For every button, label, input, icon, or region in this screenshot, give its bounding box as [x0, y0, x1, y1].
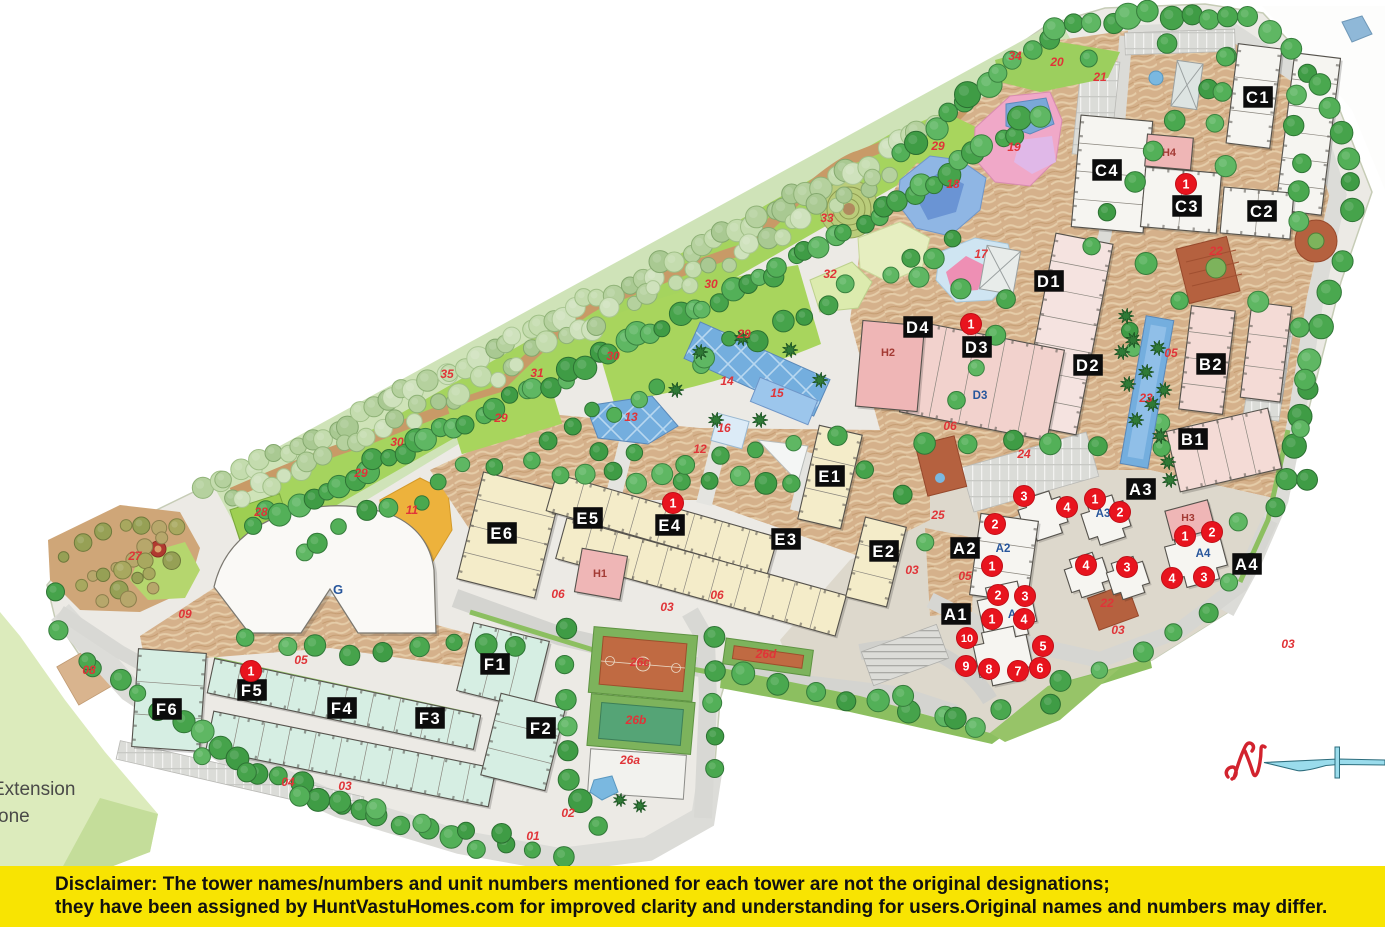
svg-text:34: 34: [1008, 49, 1022, 63]
svg-text:1: 1: [670, 497, 677, 511]
svg-text:B1: B1: [1181, 431, 1205, 449]
svg-text:1: 1: [968, 318, 975, 332]
svg-text:26c: 26c: [629, 655, 650, 669]
svg-text:13: 13: [624, 410, 638, 424]
svg-text:06: 06: [943, 419, 957, 433]
svg-text:Extension: Extension: [0, 779, 75, 800]
svg-text:05: 05: [294, 653, 308, 667]
svg-text:22: 22: [1099, 596, 1114, 610]
svg-text:4: 4: [1021, 613, 1028, 627]
svg-text:02: 02: [561, 806, 575, 820]
svg-text:G: G: [333, 582, 343, 597]
svg-text:C3: C3: [1175, 198, 1199, 216]
svg-text:1: 1: [989, 613, 996, 627]
svg-text:25: 25: [930, 508, 945, 522]
svg-text:33: 33: [820, 211, 834, 225]
svg-text:01: 01: [526, 829, 540, 843]
svg-text:4: 4: [1064, 501, 1071, 515]
svg-text:22: 22: [1208, 244, 1223, 258]
svg-text:5: 5: [1040, 640, 1047, 654]
svg-text:1: 1: [1182, 530, 1189, 544]
svg-text:1: 1: [248, 665, 255, 679]
svg-text:05: 05: [1164, 346, 1178, 360]
svg-text:1: 1: [989, 560, 996, 574]
svg-text:27: 27: [127, 549, 143, 563]
svg-text:15: 15: [770, 386, 784, 400]
svg-text:3: 3: [1021, 490, 1028, 504]
svg-text:F4: F4: [331, 700, 353, 718]
svg-text:F2: F2: [530, 720, 552, 738]
svg-text:D2: D2: [1076, 357, 1100, 375]
svg-text:E6: E6: [490, 525, 513, 543]
svg-text:1: 1: [1092, 493, 1099, 507]
svg-text:03: 03: [1281, 637, 1295, 651]
svg-text:10: 10: [961, 633, 973, 645]
svg-text:they have been assigned by Hun: they have been assigned by HuntVastuHome…: [55, 897, 1327, 918]
svg-text:4: 4: [1169, 572, 1176, 586]
svg-text:3: 3: [1124, 561, 1131, 575]
svg-text:A4: A4: [1196, 548, 1211, 560]
svg-text:17: 17: [974, 247, 989, 261]
svg-text:F1: F1: [484, 656, 506, 674]
svg-text:03: 03: [905, 563, 919, 577]
svg-text:E1: E1: [818, 468, 841, 486]
svg-text:03: 03: [1111, 623, 1125, 637]
svg-text:08: 08: [82, 663, 96, 677]
svg-text:H1: H1: [593, 568, 607, 580]
svg-text:29: 29: [736, 327, 751, 341]
svg-text:one: one: [0, 806, 30, 827]
svg-text:26b: 26b: [625, 713, 647, 727]
svg-text:E3: E3: [774, 531, 797, 549]
svg-text:09: 09: [178, 607, 192, 621]
svg-text:Disclaimer: The tower names/nu: Disclaimer: The tower names/numbers and …: [55, 874, 1110, 895]
svg-text:19: 19: [1007, 140, 1021, 154]
svg-text:29: 29: [930, 139, 945, 153]
svg-text:C4: C4: [1095, 162, 1119, 180]
svg-text:14: 14: [720, 374, 734, 388]
svg-text:A2: A2: [953, 540, 977, 558]
svg-text:D1: D1: [1037, 273, 1061, 291]
svg-text:2: 2: [995, 589, 1002, 603]
svg-text:A1: A1: [944, 606, 968, 624]
svg-text:23: 23: [1138, 391, 1153, 405]
svg-text:F5: F5: [241, 682, 263, 700]
svg-text:2: 2: [992, 518, 999, 532]
svg-text:24: 24: [1016, 447, 1031, 461]
svg-text:A4: A4: [1235, 556, 1259, 574]
svg-text:03: 03: [338, 779, 352, 793]
svg-text:9: 9: [963, 660, 970, 674]
svg-text:8: 8: [986, 663, 993, 677]
svg-text:7: 7: [1015, 665, 1022, 679]
svg-text:06: 06: [710, 588, 724, 602]
svg-text:30: 30: [606, 349, 620, 363]
svg-text:E4: E4: [658, 517, 681, 535]
svg-text:06: 06: [551, 587, 565, 601]
svg-text:30: 30: [390, 435, 404, 449]
svg-text:E2: E2: [872, 543, 895, 561]
svg-text:32: 32: [823, 267, 837, 281]
svg-text:D3: D3: [965, 339, 989, 357]
svg-text:C1: C1: [1246, 89, 1270, 107]
svg-text:2: 2: [1117, 506, 1124, 520]
svg-text:B2: B2: [1199, 356, 1223, 374]
svg-text:11: 11: [406, 503, 419, 517]
svg-text:31: 31: [530, 366, 544, 380]
svg-text:04: 04: [281, 775, 295, 789]
svg-text:6: 6: [1037, 662, 1044, 676]
svg-text:30: 30: [704, 277, 718, 291]
svg-text:H3: H3: [1181, 512, 1195, 524]
svg-text:2: 2: [1209, 526, 1216, 540]
svg-text:H2: H2: [881, 347, 895, 359]
svg-text:26d: 26d: [755, 647, 777, 661]
svg-text:F3: F3: [419, 710, 441, 728]
svg-text:12: 12: [693, 442, 707, 456]
svg-text:A2: A2: [996, 543, 1011, 555]
svg-text:16: 16: [717, 421, 731, 435]
svg-text:3: 3: [1201, 571, 1208, 585]
svg-text:28: 28: [253, 505, 268, 519]
svg-text:A3: A3: [1096, 508, 1111, 520]
svg-text:3: 3: [1022, 590, 1029, 604]
svg-text:H4: H4: [1162, 147, 1177, 159]
svg-text:C2: C2: [1250, 203, 1274, 221]
svg-text:21: 21: [1092, 70, 1107, 84]
svg-text:05: 05: [958, 569, 972, 583]
svg-text:D4: D4: [906, 319, 930, 337]
svg-text:18: 18: [946, 177, 960, 191]
svg-text:A3: A3: [1129, 481, 1153, 499]
svg-text:F6: F6: [156, 701, 178, 719]
svg-text:26a: 26a: [619, 753, 640, 767]
svg-text:E5: E5: [576, 510, 599, 528]
svg-text:29: 29: [353, 466, 368, 480]
svg-text:03: 03: [660, 600, 674, 614]
svg-text:35: 35: [440, 367, 454, 381]
svg-text:D3: D3: [973, 390, 988, 402]
svg-text:29: 29: [493, 411, 508, 425]
svg-text:20: 20: [1049, 55, 1064, 69]
svg-text:1: 1: [1183, 178, 1190, 192]
svg-text:4: 4: [1083, 559, 1090, 573]
